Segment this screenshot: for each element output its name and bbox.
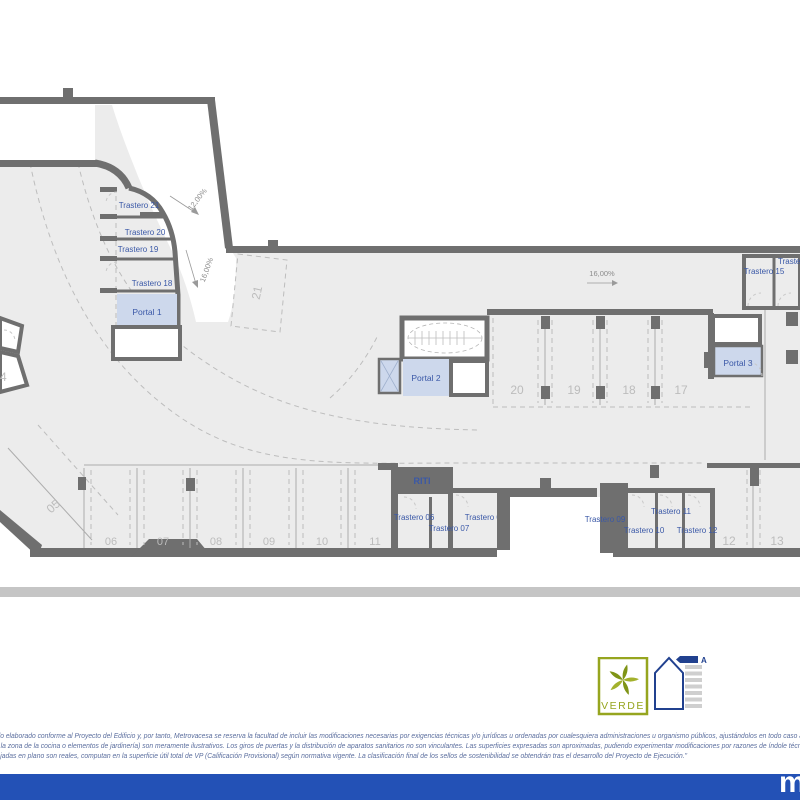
trastero-16-label-cut: Trastero 1 [778, 257, 800, 266]
core-portal3: Portal 3 [704, 313, 762, 379]
floorplan-drawing: Trastero 21 Trastero 20 Trastero 19 Tras… [0, 0, 800, 600]
metrovacesa-logo-cut: m [779, 766, 800, 800]
metrovacesa-bar: m [0, 774, 800, 800]
disclaimer-line-3: lejadas en plano son reales, computan en… [0, 753, 687, 760]
disclaimer-line-1: ido elaborado conforme al Proyecto del E… [0, 733, 800, 740]
floorplan-page: Trastero 21 Trastero 20 Trastero 19 Tras… [0, 0, 800, 800]
parking-18-number: 18 [622, 383, 636, 397]
trastero-07-label: Trastero 07 [429, 524, 470, 533]
trastero-11-label: Trastero 11 [651, 507, 692, 516]
disclaimer-line-2: n la zona de la cocina o elementos de ja… [0, 743, 800, 750]
parking-04-number-cut: 4 [0, 370, 7, 384]
room-above-portal3 [713, 316, 760, 344]
verde-logo: VERDE [595, 657, 655, 719]
energy-rating-icon: A [648, 655, 713, 717]
parking-13-number: 13 [770, 534, 784, 548]
trastero-20-label: Trastero 20 [125, 228, 166, 237]
parking-06-number: 06 [105, 536, 117, 548]
trastero-21-label: Trastero 21 [119, 201, 160, 210]
parking-08-number: 08 [210, 536, 222, 548]
verde-label: VERDE [601, 700, 645, 712]
trastero-15-label: Trastero 15 [744, 267, 785, 276]
parking-09-number: 09 [263, 536, 275, 548]
separator-band [0, 587, 800, 597]
parking-10-number: 10 [316, 536, 328, 548]
parking-11-number: 11 [369, 536, 380, 548]
trastero-18-label: Trastero 18 [132, 279, 173, 288]
energy-class-tag [676, 656, 698, 663]
trastero-09-label: Trastero 09 [585, 515, 626, 524]
parking-19-number: 19 [567, 383, 581, 397]
portal1-label: Portal 1 [132, 307, 162, 317]
stair-room-west [113, 327, 180, 359]
energy-class-letter: A [701, 656, 707, 665]
trastero-19-label: Trastero 19 [118, 245, 159, 254]
trastero-10-label: Trastero 10 [624, 526, 665, 535]
grade-16-aisle-label: 16,00% [589, 269, 615, 278]
trastero-06-label: Trastero 06 [394, 513, 435, 522]
parking-07-number: 07 [157, 536, 169, 548]
disclaimer: ido elaborado conforme al Proyecto del E… [0, 726, 800, 770]
parking-12-number: 12 [722, 534, 736, 548]
parking-17-number: 17 [674, 383, 688, 397]
energy-bars [685, 665, 702, 708]
portal3-label: Portal 3 [723, 358, 753, 368]
room-beside-portal2 [451, 361, 487, 395]
courtyard-void [510, 497, 600, 560]
riti-label: RITI [414, 476, 431, 486]
trastero-12-label: Trastero 12 [677, 526, 718, 535]
parking-20-number: 20 [510, 383, 524, 397]
portal2-label: Portal 2 [411, 373, 441, 383]
